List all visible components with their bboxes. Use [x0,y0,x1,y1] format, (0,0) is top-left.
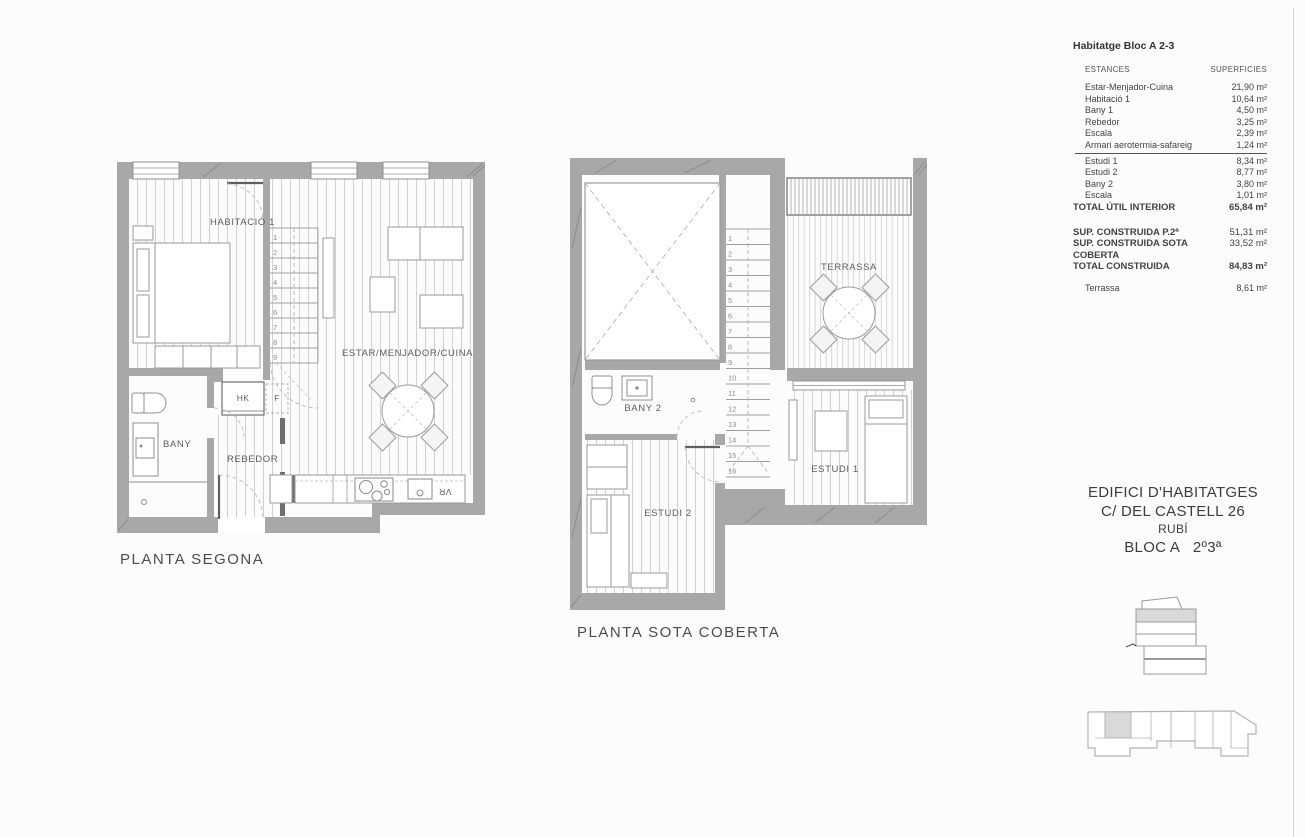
stair-number: 9 [273,353,277,362]
sup-construida-p2-row: SUP. CONSTRUIDA P.2ª 51,31 m² [1073,227,1267,239]
street-address: C/ DEL CASTELL 26 [1078,502,1268,521]
plan-segona-caption: PLANTA SEGONA [120,551,264,568]
stair-number: 7 [273,323,277,332]
rebedor-label: REBEDOR [227,454,278,465]
bany-label: BANY [163,439,191,450]
terrassa-pergola [787,178,911,215]
stair-number: 16 [728,467,736,476]
table-row: Armari aerotermia-safareig 1,24 m² [1073,140,1267,152]
f-label: F [274,393,280,403]
stair-number: 6 [728,312,732,321]
table-row: Estudi 2 8,77 m² [1073,167,1267,179]
stair-number: 4 [728,281,732,290]
stair-number: 6 [273,308,277,317]
table-row: Escala 1,01 m² [1073,190,1267,202]
highlighted-floor [1136,609,1196,622]
stair-number: 5 [273,293,277,302]
sink-icon [408,479,432,499]
plan-sota-coberta-caption: PLANTA SOTA COBERTA [577,624,780,641]
bany2-fixtures [592,376,695,405]
stair-number: 13 [728,420,736,429]
habitacio1-label: HABITACIÓ 1 [210,217,275,228]
table-row: Bany 1 4,50 m² [1073,105,1267,117]
table-row: Estar-Menjador-Cuina 21,90 m² [1073,82,1267,94]
table-row: Habitació 1 10,64 m² [1073,94,1267,106]
terrassa-label: TERRASSA [821,262,877,273]
drain-icon [691,398,695,402]
cooktop-icon [355,478,393,501]
stair-number: 4 [273,278,277,287]
estudi1-label: ESTUDI 1 [811,464,859,475]
stair-number: 8 [273,338,277,347]
total-construida-row: TOTAL CONSTRUIDA 84,83 m² [1073,261,1267,273]
stair-number: 5 [728,296,732,305]
table-row: Bany 2 3,80 m² [1073,179,1267,191]
table-divider [1075,153,1267,154]
building-title: EDIFICI D'HABITATGES [1078,483,1268,502]
city: RUBÍ [1078,521,1268,538]
stair-number: 3 [728,265,732,274]
stair-number: 12 [728,405,736,414]
block-unit: BLOC A 2º3ª [1078,538,1268,557]
site-key-plan-icon [1085,704,1261,766]
staircase: 1 2 3 4 5 6 7 8 9 10 11 12 13 14 15 16 [726,229,770,477]
toilet-icon [592,376,612,388]
total-util-row: TOTAL ÚTIL INTERIOR 65,84 m² [1073,202,1267,214]
stair-number: 7 [728,327,732,336]
drawing-sheet: 1 2 3 4 5 6 7 8 9 [0,0,1305,837]
toilet-icon [132,393,144,413]
sheet-border-line [1293,8,1294,837]
surface-table-header: ESTANCES SUPERFICIES [1073,65,1267,74]
table-row: Rebedor 3,25 m² [1073,117,1267,129]
vr-label: VR [439,487,452,497]
estar-label: ESTAR/MENJADOR/CUINA [342,348,473,359]
floor-plan-segona: 1 2 3 4 5 6 7 8 9 [115,150,487,535]
sup-construida-sota-coberta-row: SUP. CONSTRUIDA SOTA COBERTA 33,52 m² [1073,238,1267,261]
estudi2-label: ESTUDI 2 [644,508,692,519]
col-estances: ESTANCES [1085,65,1130,74]
double-height-void [585,183,720,360]
stair-number: 10 [728,374,736,383]
bany2-label: BANY 2 [624,403,661,414]
stair-number: 8 [728,343,732,352]
table-row: Estudi 1 8,34 m² [1073,156,1267,168]
terrassa-row: Terrassa 8,61 m² [1073,283,1267,295]
table-row: Escala 2,39 m² [1073,128,1267,140]
col-superficies: SUPERFICIES [1210,65,1267,74]
stair-number: 14 [728,436,736,445]
title-block: EDIFICI D'HABITATGES C/ DEL CASTELL 26 R… [1078,483,1268,557]
stair-number: 2 [728,250,732,259]
floor-plan-sota-coberta: 1 2 3 4 5 6 7 8 9 10 11 12 13 14 15 16 [565,148,927,615]
stair-number: 15 [728,451,736,460]
surface-table-title: Habitatge Bloc A 2-3 [1073,40,1267,52]
building-section-key-icon [1126,596,1208,686]
stair-number: 9 [728,358,732,367]
hk-label: HK [237,393,250,403]
stair-number: 1 [273,233,277,242]
stair-number: 2 [273,248,277,257]
surface-table: Habitatge Bloc A 2-3 ESTANCES SUPERFICIE… [1073,40,1267,295]
kitchen-counter: VR [270,475,465,503]
stair-number: 1 [728,234,732,243]
stair-number: 11 [728,389,736,398]
stair-number: 3 [273,263,277,272]
shower-drain-icon [142,500,147,505]
